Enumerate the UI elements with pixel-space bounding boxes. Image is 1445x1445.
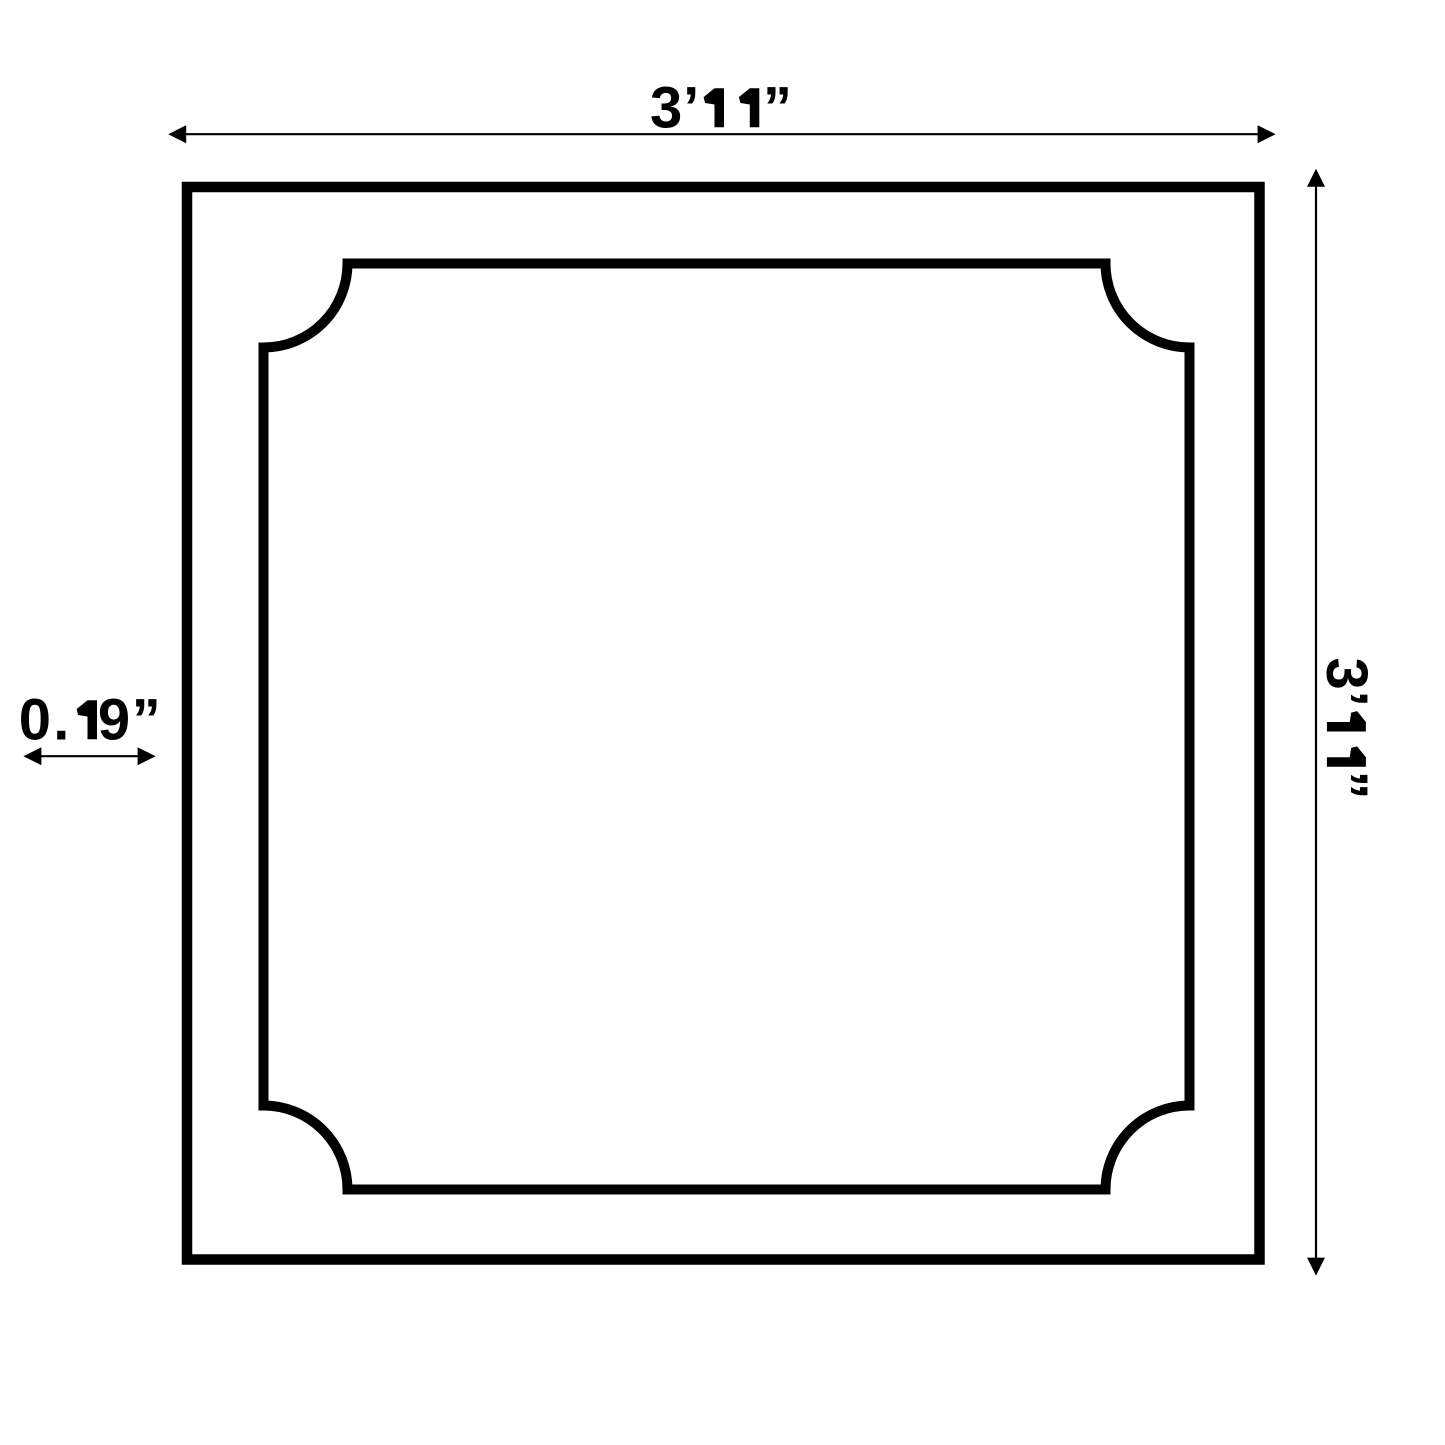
svg-text:0: 0 — [19, 687, 51, 752]
svg-text:9: 9 — [98, 687, 130, 752]
svg-text:.: . — [53, 687, 69, 752]
svg-text:”: ” — [132, 687, 161, 752]
